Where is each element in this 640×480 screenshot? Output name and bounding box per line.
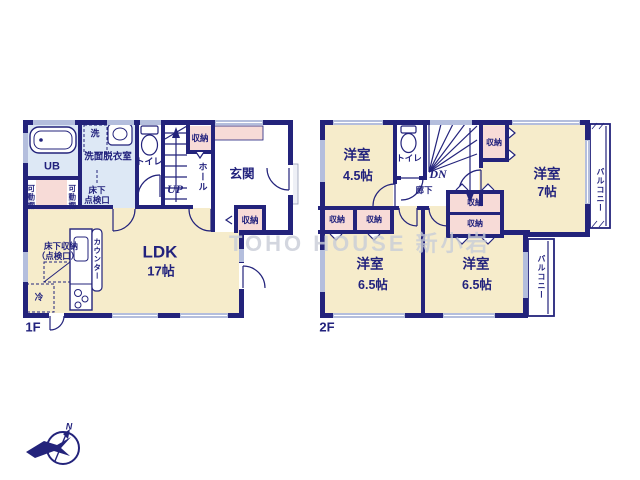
stairs-up-label: UP <box>167 183 183 195</box>
movable-shelf-label-right: 可動棚 <box>68 184 76 210</box>
balcony-label-bottom: バルコニー <box>537 255 545 300</box>
toilet-icon-2f <box>401 126 416 153</box>
genkan-cabinet <box>213 126 263 140</box>
storage-label-1f-a: 収納 <box>191 134 208 143</box>
compass-icon <box>26 429 79 464</box>
balcony-label-top: バルコニー <box>596 168 604 213</box>
toilet-label-2f: トイレ <box>396 154 422 163</box>
room2-size-label: 7帖 <box>537 186 556 199</box>
hall-label: ホール <box>198 162 207 192</box>
toilet-icon-1f <box>141 126 158 134</box>
floor1-label: 1F <box>25 321 40 334</box>
room3-size-label: 6.5帖 <box>358 279 388 292</box>
floor-plan-page: UB 洗 洗面脱衣室 床下 点検口 可動棚 可動棚 トイレ UP 収納 ホール … <box>0 0 640 480</box>
storage-label-2f-e1: 収納 <box>329 216 345 224</box>
corridor-label: 廊下 <box>415 186 432 195</box>
floor1-plan <box>23 120 298 330</box>
storage-label-2f-e2: 収納 <box>366 216 382 224</box>
underfloor-check-line2: 点検口 <box>84 196 110 205</box>
floor2-label: 2F <box>319 321 334 334</box>
underfloor-storage-line2: （点検口） <box>37 252 80 261</box>
watermark-text: TOHO HOUSE 新小岩 <box>229 226 491 258</box>
ldk-size-label: 17帖 <box>147 265 174 278</box>
room2-name-label: 洋室 <box>534 167 561 181</box>
counter-label: カウンター <box>93 238 101 281</box>
toilet-label-1f: トイレ <box>135 158 162 167</box>
entrance-label: 玄関 <box>229 168 254 181</box>
room1-size-label: 4.5帖 <box>343 170 373 183</box>
movable-shelf-label-left: 可動棚 <box>27 184 35 210</box>
stairs-down-label: DN <box>429 168 446 180</box>
room4-name-label: 洋室 <box>463 257 490 271</box>
washer-label: 洗 <box>90 130 99 139</box>
underfloor-check-line1: 床下 <box>88 186 105 195</box>
compass-north-label: N <box>66 423 73 432</box>
fridge-label: 冷 <box>35 293 44 302</box>
room-ldk <box>23 205 243 317</box>
room4-size-label: 6.5帖 <box>462 279 492 292</box>
storage-label-2f-d1: 収納 <box>467 199 483 207</box>
storage-label-1f-b: 収納 <box>241 216 258 225</box>
room3-name-label: 洋室 <box>357 257 384 271</box>
underfloor-storage-line1: 床下収納 <box>44 242 78 251</box>
ldk-name-label: LDK <box>143 244 178 261</box>
storage-label-2f-c: 収納 <box>486 139 502 147</box>
washroom-label: 洗面脱衣室 <box>84 152 132 162</box>
bath-label: UB <box>44 162 60 173</box>
room1-name-label: 洋室 <box>344 148 371 162</box>
